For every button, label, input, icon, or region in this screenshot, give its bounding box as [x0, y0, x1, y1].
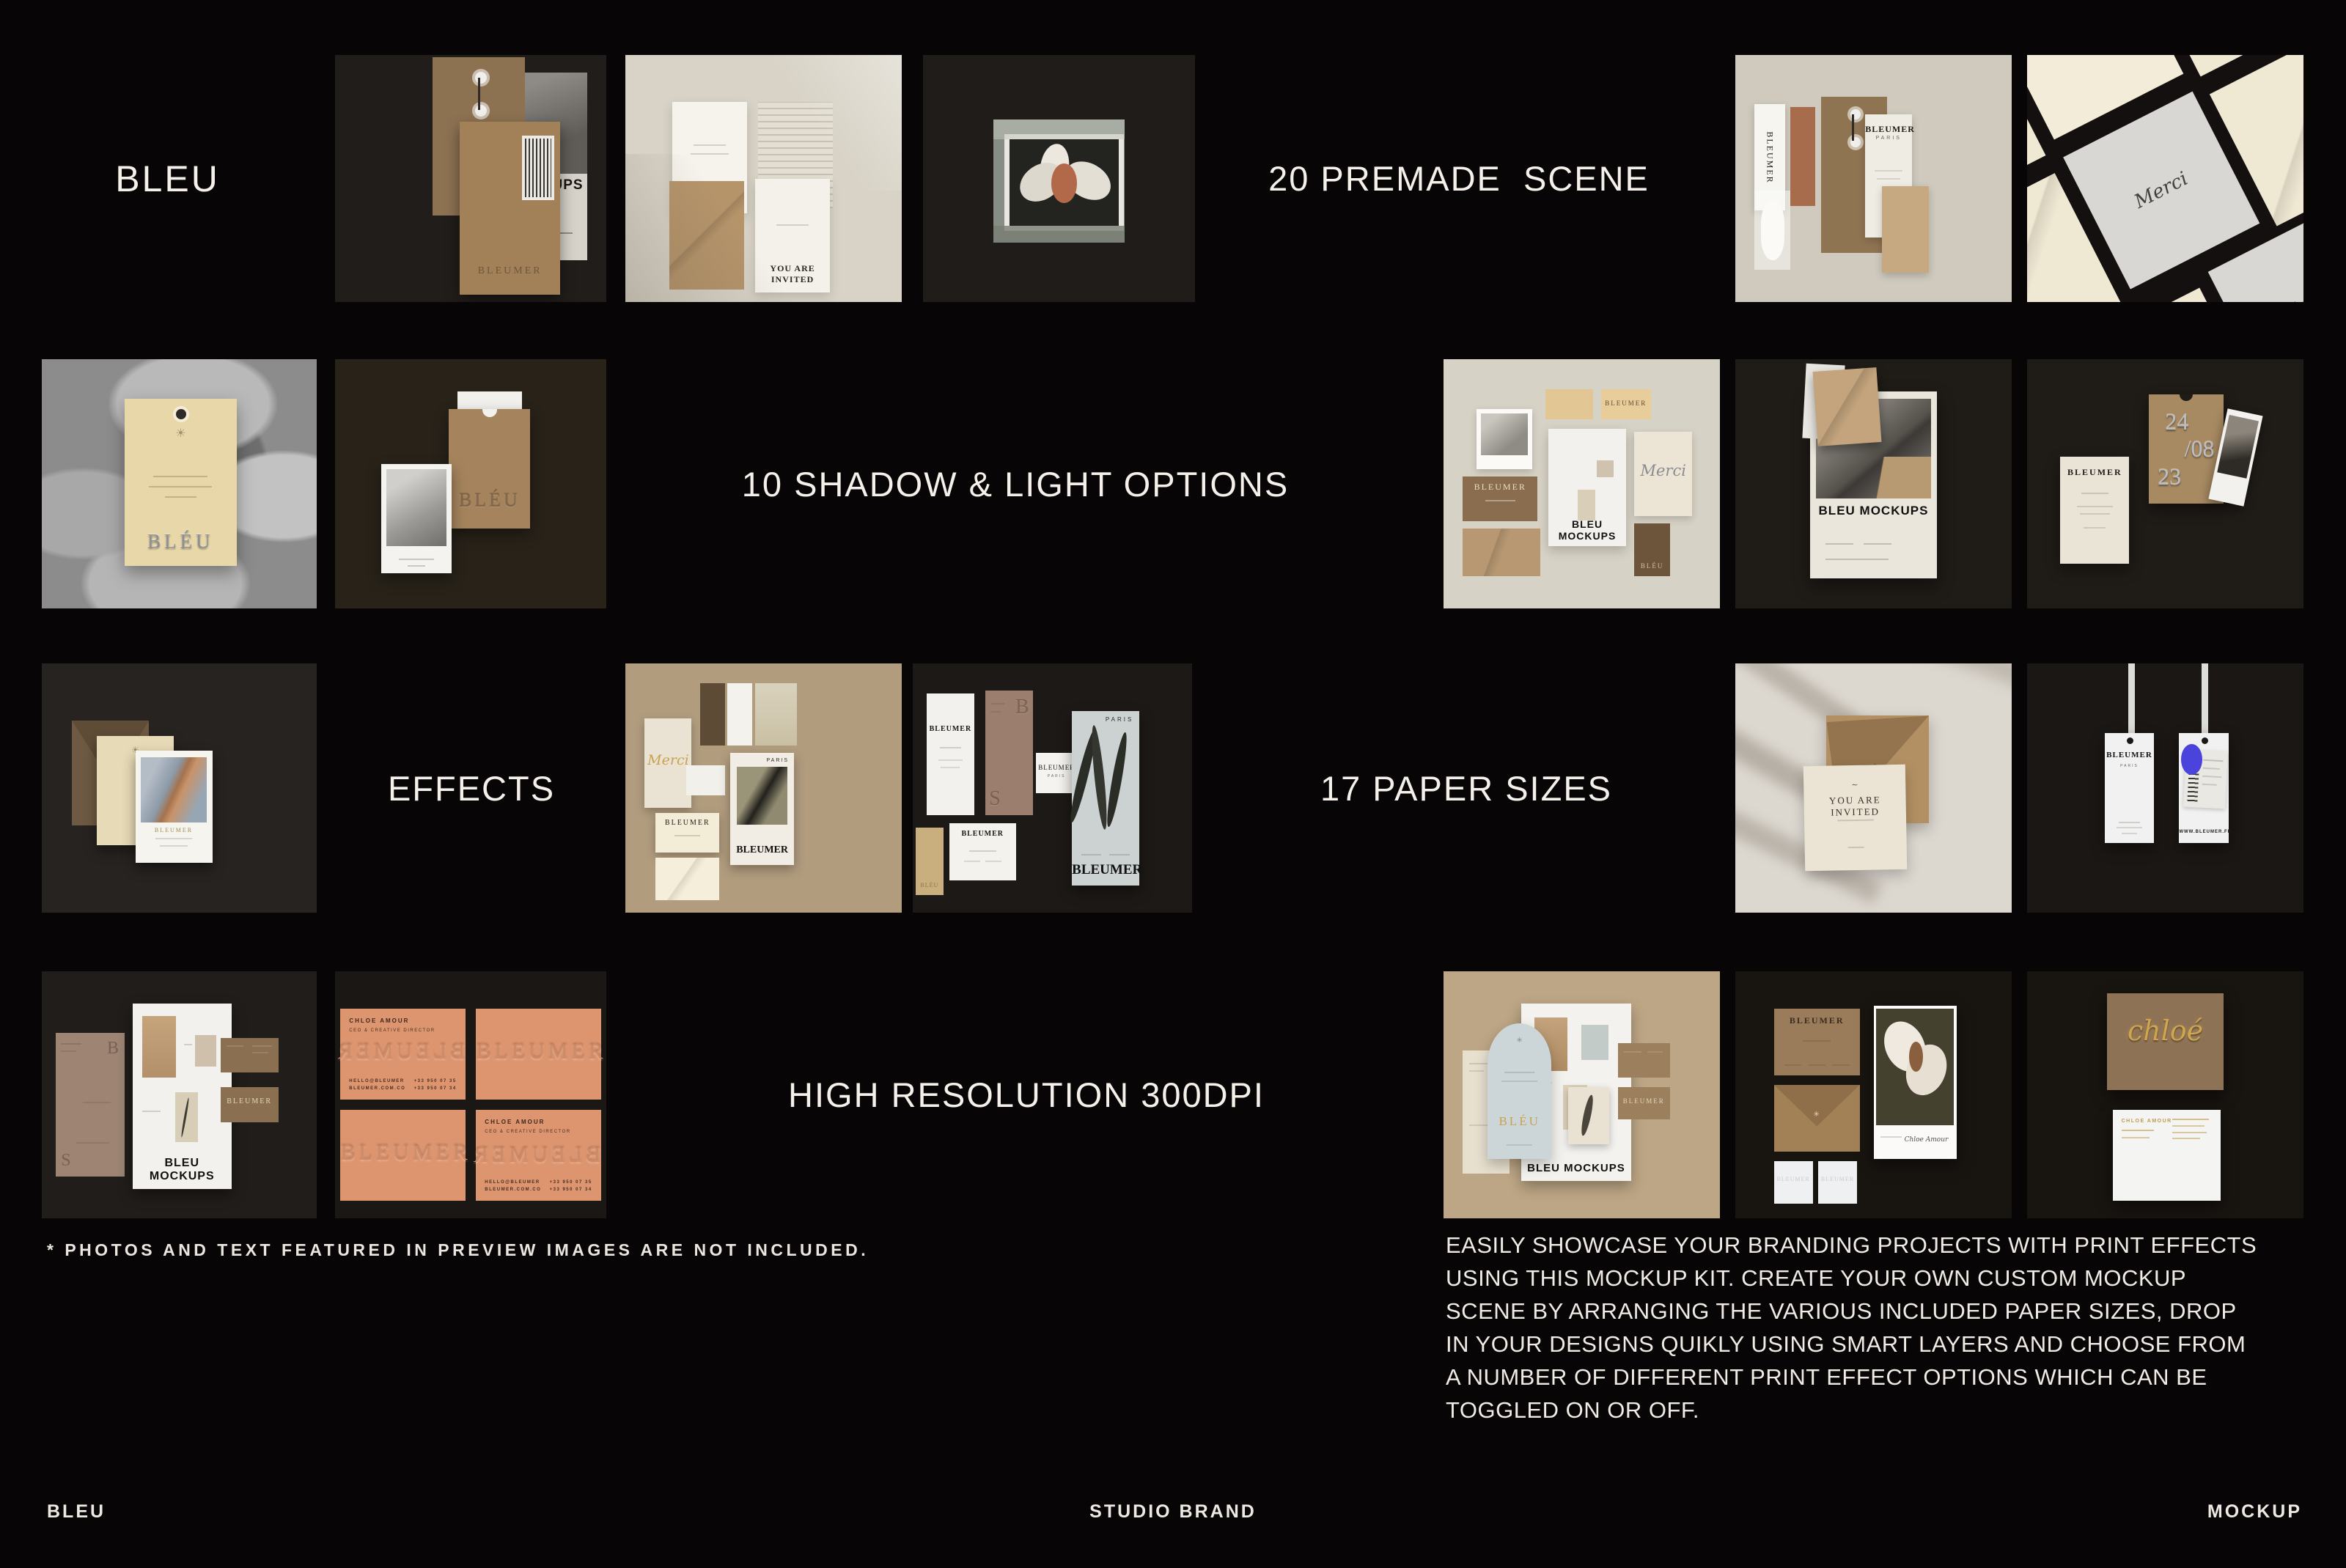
poster-title: BLEUMER	[1072, 862, 1139, 878]
chloe-gold-logo: chloé	[2107, 1015, 2223, 1047]
invite-card: ~ YOU ARE INVITED	[1803, 765, 1908, 871]
cream-envelope	[655, 858, 719, 900]
translucent-envelope	[993, 119, 1124, 243]
invitation-card: BLEUMER	[2060, 457, 2129, 564]
embossed-logo: BLEUMER	[476, 1039, 600, 1064]
embossed-white-logo: BLEUMER	[1818, 1176, 1857, 1182]
chloe-card: chloé	[2107, 993, 2223, 1089]
embossed-logo-mirrored: BLEUMER	[340, 1039, 465, 1064]
envelope	[1463, 529, 1540, 576]
small-card	[686, 765, 725, 795]
photo-card	[381, 464, 452, 574]
card-title: CEO & CREATIVE DIRECTOR	[349, 1028, 435, 1033]
tile-effects-2: Merci PARIS BLEUMER BLEUMER	[625, 663, 902, 913]
small-white-card: BLEUMER	[1818, 1161, 1857, 1203]
terracotta-card: CHLOE AMOUR CEO & CREATIVE DIRECTOR BLEU…	[476, 1110, 600, 1201]
merci-text: Merci	[644, 752, 691, 768]
tan-card: BLEUMER	[1601, 389, 1651, 419]
signature-script: Chloe Amour	[1905, 1136, 1949, 1144]
tile-resolution-4: BLEUMER ✳ Chloe Amour BLEUMER BLEUMER	[1735, 971, 2012, 1218]
magnolia-card: Chloe Amour	[1874, 1006, 1957, 1159]
merci-text: Merci	[1634, 462, 1692, 479]
mauve-card: B S	[985, 691, 1033, 815]
kraft-envelope	[1813, 367, 1882, 446]
wax-seal	[1051, 163, 1078, 203]
merci-card: Merci	[644, 718, 691, 808]
small-white-card: BLEUMER	[1774, 1161, 1813, 1203]
tile-resolution-3: BLEU MOCKUPS ✳ BLÉU BLEUMER	[1444, 971, 1720, 1218]
date-day: 24	[2165, 408, 2188, 435]
bleu-mini-card: BLÉU	[1634, 523, 1670, 575]
tile-shadow-5: BLEUMER 24 /08 23	[2027, 359, 2303, 608]
card-name: CHLOE AMOUR	[485, 1119, 545, 1125]
poster-title: BLEUMER	[730, 844, 794, 856]
card-contact-right: +33 950 07 35 +33 950 07 34	[550, 1179, 592, 1193]
tan-card	[1545, 389, 1592, 419]
plastic-sleeve	[1754, 191, 1790, 270]
shipping-sticker	[522, 136, 554, 200]
embossed-white-logo: BLEUMER	[1774, 1176, 1813, 1182]
white-tall-card: BLEUMER	[927, 693, 974, 816]
letterhead-name: CHLOE AMOUR	[2122, 1119, 2172, 1124]
tag-logo: BLEUMER	[2105, 751, 2155, 759]
footer-studio: STUDIO BRAND	[0, 1501, 2346, 1523]
card-logo: BLEUMER	[949, 830, 1016, 838]
tile-paper-1: Ô ~ YOU ARE INVITED	[1735, 663, 2012, 913]
poster-canvas: BLEU MOCKUPS BLEUMER YOU ARE INVITED	[0, 0, 2346, 1568]
card-title: CEO & CREATIVE DIRECTOR	[485, 1130, 570, 1134]
chloe-letterhead: CHLOE AMOUR	[2113, 1110, 2221, 1201]
tile-premade-4: BLEUMER BLEUMER PARIS	[1735, 55, 2012, 302]
brown-card-logo: BLEUMER	[1463, 482, 1537, 493]
merci-card-text: Merci	[2131, 168, 2192, 213]
sleeve-logo: BLÉU	[449, 490, 530, 512]
terracotta-card: BLEUMER	[340, 1110, 465, 1201]
effects-label: EFFECTS	[317, 663, 625, 913]
tile-premade-3	[923, 55, 1195, 302]
tile-effects-1: ☀ BLEUMER	[42, 663, 317, 913]
tan-envelope	[1882, 186, 1929, 273]
poster-title: BLEU MOCKUPS	[133, 1157, 232, 1183]
tile-resolution-5: chloé CHLOE AMOUR	[2027, 971, 2303, 1218]
white-slim-card	[727, 683, 752, 746]
tag-sub: PARIS	[2105, 764, 2155, 768]
brown-square-card	[1618, 1043, 1671, 1078]
business-card-logo: BLEUMER	[655, 819, 719, 827]
terracotta-card	[1790, 107, 1815, 206]
invite-title: YOU ARE INVITED	[1804, 794, 1907, 819]
arch-card: ✳ BLÉU	[1488, 1023, 1551, 1159]
diagonal-grid: Merci Merci	[2027, 55, 2303, 302]
script-line: ~	[1803, 779, 1906, 790]
merci-card: Merci	[1634, 432, 1692, 517]
kraft-sleeve: BLÉU	[449, 409, 530, 529]
tile-premade-2: YOU ARE INVITED YOU ARE INVITED	[625, 55, 902, 302]
tile-premade-5: Merci Merci	[2027, 55, 2303, 302]
embossed-logo: BLEUMER	[340, 1141, 465, 1166]
card-logo: BLEUMER	[136, 827, 213, 833]
hang-tag: ☀ BLÉU	[125, 399, 238, 566]
window-light	[736, 55, 902, 191]
flower-print	[1568, 1087, 1610, 1144]
poster: BLEU MOCKUPS	[1548, 429, 1626, 546]
card-contact-left: HELLO@BLEUMER BLEUMER.COM.CO	[349, 1078, 405, 1092]
tag-website: WWW.BLEUMER.FR	[2179, 830, 2229, 834]
bleu-mini-logo: BLÉU	[1634, 562, 1670, 570]
white-wide-card: BLEUMER	[949, 823, 1016, 880]
letterhead-sub: PARIS	[1865, 136, 1912, 141]
tile-paper-2: BLEUMER PARIS WWW.BLEUMER.FR	[2027, 663, 2303, 913]
disclaimer-note: * PHOTOS AND TEXT FEATURED IN PREVIEW IM…	[47, 1240, 869, 1260]
brown-card-logo: BLEUMER	[221, 1097, 279, 1105]
tag-logo: BLÉU	[125, 530, 238, 553]
brown-card-logo: BLEUMER	[1618, 1097, 1671, 1105]
brown-business-card: BLEUMER	[221, 1087, 279, 1122]
vertical-card-logo: BLEUMER	[1765, 131, 1776, 183]
poster-title: BLEU MOCKUPS	[1521, 1162, 1632, 1174]
hang-tag: BLEUMER PARIS	[2105, 733, 2155, 843]
poster-title: BLEU MOCKUPS	[1810, 504, 1937, 518]
brown-envelope: ✳	[1774, 1085, 1860, 1152]
photo-card	[1477, 409, 1531, 469]
letterhead-logo: BLEUMER	[1865, 124, 1912, 135]
brown-slim-card	[700, 683, 725, 746]
card-contact-left: HELLO@BLEUMER BLEUMER.COM.CO	[485, 1179, 541, 1193]
card-name: CHLOE AMOUR	[349, 1017, 409, 1024]
description-paragraph: EASILY SHOWCASE YOUR BRANDING PROJECTS W…	[1446, 1229, 2346, 1427]
palm-shadow	[1888, 663, 2012, 696]
tile-effects-3: BLEUMER B S BLEUMER PARIS PARIS BLEUMER …	[913, 663, 1192, 913]
brown-card-logo: BLEUMER	[1774, 1015, 1860, 1026]
poster-sub: PARIS	[1106, 716, 1133, 723]
flower-photo	[1004, 134, 1125, 231]
paper-sizes-label: 17 PAPER SIZES	[1232, 663, 1701, 913]
brown-business-card	[221, 1038, 279, 1072]
terracotta-card: CHLOE AMOUR CEO & CREATIVE DIRECTOR BLEU…	[340, 1009, 465, 1100]
tile-shadow-3: BLEUMER BLEUMER BLEU MOCKUPS Merci BLÉU	[1444, 359, 1720, 608]
embossed-logo-mirrored: BLEUMER	[476, 1143, 600, 1168]
tan-card-logo: BLEUMER	[1601, 400, 1651, 407]
tile-shadow-1: ☀ BLÉU	[42, 359, 317, 608]
tile-shadow-4: BLEU MOCKUPS	[1735, 359, 2012, 608]
poster-sub: PARIS	[767, 758, 790, 763]
tile-shadow-2: BLÉU	[335, 359, 606, 608]
hang-tag-label: WWW.BLEUMER.FR	[2179, 733, 2229, 843]
terracotta-card: BLEUMER	[476, 1009, 600, 1100]
envelope: BLEUMER	[460, 122, 560, 295]
invitation-logo: BLEUMER	[2060, 467, 2129, 478]
brown-square-card: BLEUMER	[1618, 1087, 1671, 1119]
poster: BLEU MOCKUPS	[133, 1004, 232, 1189]
tile-resolution-2: CHLOE AMOUR CEO & CREATIVE DIRECTOR BLEU…	[335, 971, 606, 1218]
shadow-light-label: 10 SHADOW & LIGHT OPTIONS	[586, 359, 1444, 608]
mauve-card: B S	[56, 1033, 125, 1176]
brown-card: BLEUMER	[1774, 1009, 1860, 1075]
brown-card: BLEUMER	[1463, 476, 1537, 521]
photo-card: BLEUMER	[136, 751, 213, 863]
card-logo: BLEUMER	[927, 725, 974, 733]
ribbon	[2202, 663, 2209, 738]
merci-card-text: Merci	[2276, 283, 2303, 302]
card-contact-right: +33 950 07 35 +33 950 07 34	[414, 1078, 457, 1092]
resolution-label: HIGH RESOLUTION 300DPI	[608, 971, 1444, 1218]
gold-card: BLÉU	[916, 828, 944, 895]
brand-title: BLEU	[0, 55, 335, 302]
business-card: BLEUMER	[655, 813, 719, 853]
arch-card-logo: BLÉU	[1488, 1114, 1551, 1129]
blue-sticker	[2181, 744, 2202, 775]
sun-icon: ☀	[125, 426, 238, 441]
envelope-logo: BLEUMER	[460, 265, 560, 277]
botanical-poster: PARIS BLEUMER	[1072, 711, 1139, 886]
poster: PARIS BLEUMER	[730, 753, 794, 865]
date-month: /08	[2185, 435, 2215, 463]
tile-premade-1: MOCKUPS BLEUMER	[335, 55, 606, 302]
tile-resolution-1: B S BLEU MOCKUPS BLEUMER	[42, 971, 317, 1218]
poster-title: BLEU MOCKUPS	[1548, 518, 1626, 542]
gold-card-logo: BLÉU	[916, 882, 944, 888]
footer-mockup: MOCKUP	[2207, 1501, 2302, 1523]
premade-scene-label: 20 PREMADE SCENE	[1217, 55, 1701, 302]
ribbon	[2128, 663, 2136, 738]
date-year: 23	[2158, 463, 2181, 490]
photo-slim-card	[755, 683, 797, 746]
